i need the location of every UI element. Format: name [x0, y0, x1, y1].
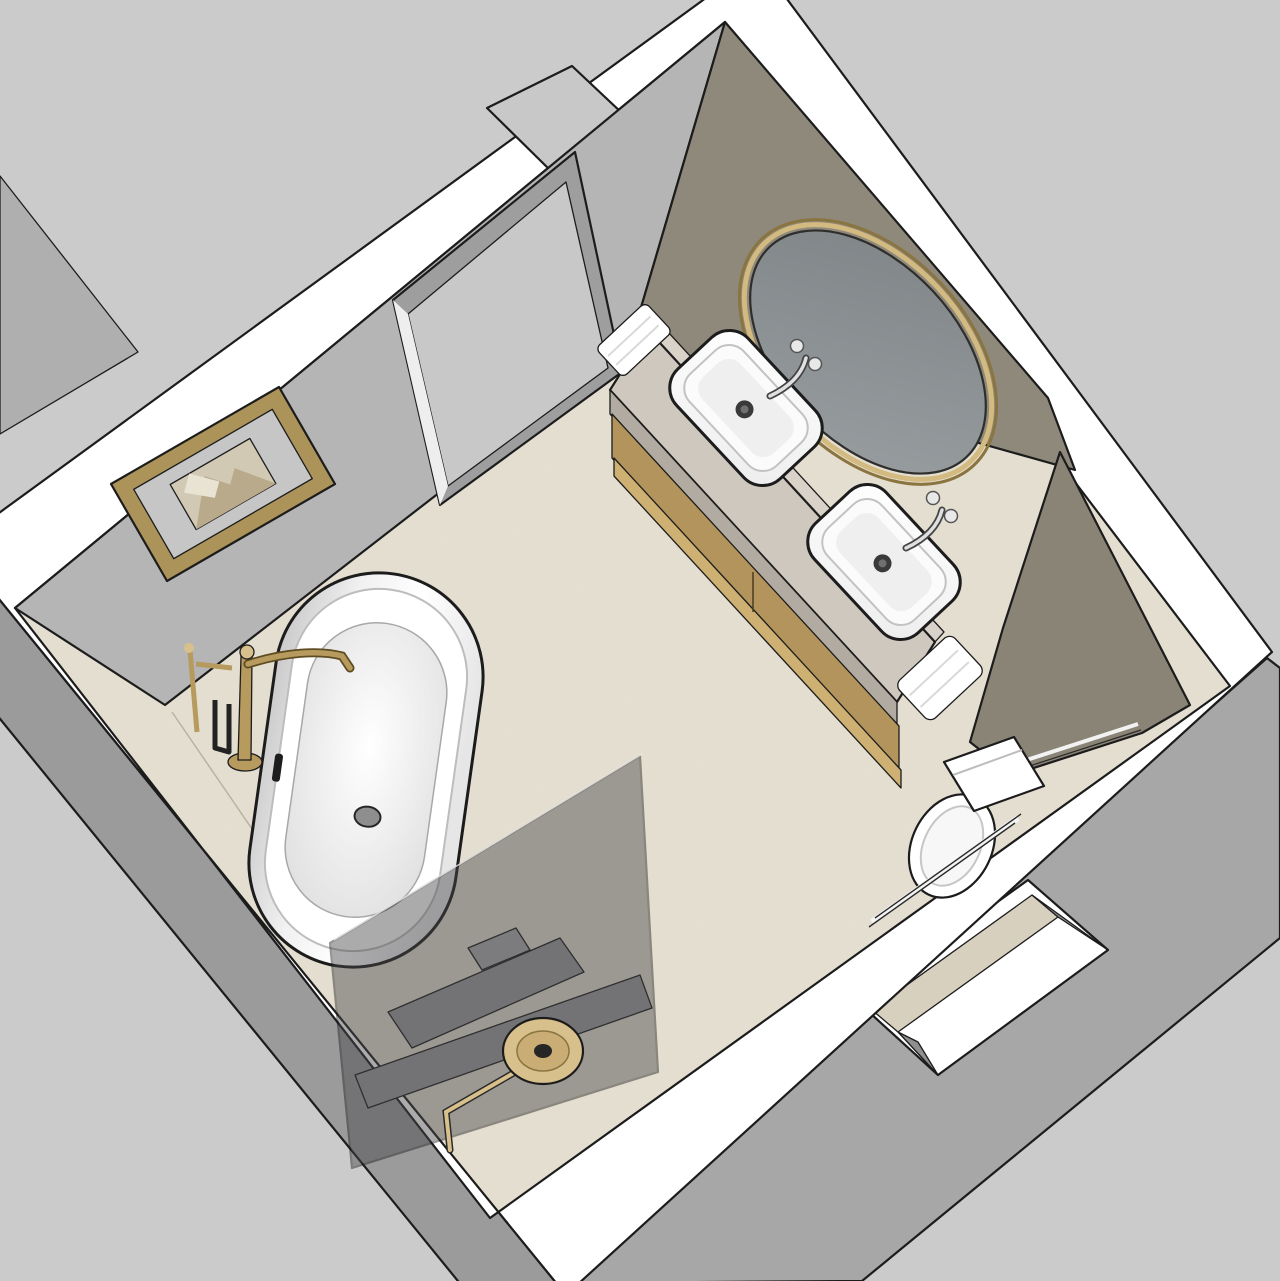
faucet-handle	[927, 492, 940, 505]
viewport	[0, 0, 1280, 1281]
hand-shower-knob	[184, 643, 194, 653]
faucet-handle	[945, 510, 958, 523]
faucet-handle	[809, 358, 822, 371]
filler-finial	[240, 645, 254, 659]
filler-column	[238, 656, 252, 760]
faucet-handle	[791, 340, 804, 353]
shower-head-center	[534, 1044, 552, 1058]
scene-canvas	[0, 0, 1280, 1281]
